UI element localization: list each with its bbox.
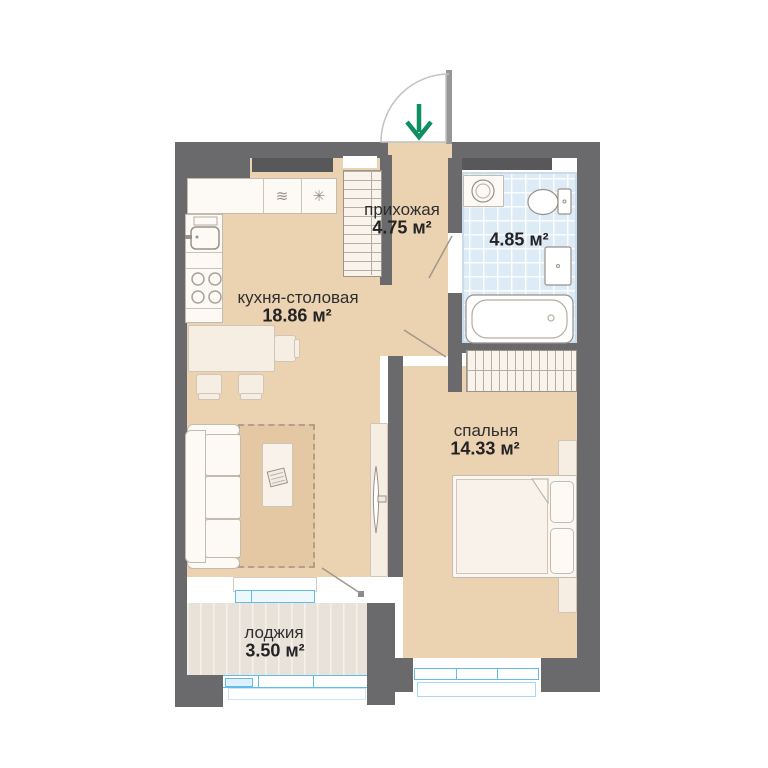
wall-loggia-left-corner	[175, 675, 223, 707]
wall-bedroom-door-stub	[448, 353, 462, 392]
loggia-outer-sill	[228, 688, 366, 700]
wall-bedroom-bottom-left	[395, 658, 413, 692]
coffee-table	[262, 443, 293, 507]
kitchen-hallway-passage-floor	[380, 285, 397, 356]
floor-plan: ≋ ✳	[0, 0, 768, 768]
entry-arrow-icon	[407, 104, 431, 137]
loggia-vent-window	[225, 678, 253, 687]
living-window	[235, 590, 315, 603]
loggia-area: 3.50 м²	[245, 641, 304, 662]
dining-chair-bottom-1-back	[198, 393, 220, 400]
dishwasher-icon: ≋	[276, 187, 289, 205]
bed-pillow	[550, 481, 574, 523]
sofa-backrest	[185, 430, 206, 563]
dining-chair-right-back	[294, 339, 300, 358]
sofa-cushion	[205, 519, 241, 558]
loggia-door-hinge	[358, 591, 364, 597]
bed-mattress	[456, 479, 548, 574]
dining-table	[188, 325, 275, 372]
entry-door-leaf	[446, 70, 452, 144]
living-window-divider	[251, 591, 252, 602]
wall-hallway-bathroom-upper	[448, 158, 462, 233]
kitchen-living-area: 18.86 м²	[262, 306, 331, 327]
bathroom-door-threshold	[448, 233, 462, 293]
bedroom-window-divider	[456, 669, 457, 679]
wall-bedroom-bottom-right	[541, 658, 600, 692]
bedroom-wardrobe	[466, 350, 577, 392]
counter-divider	[186, 252, 222, 253]
hallway-floor	[392, 155, 448, 356]
bedroom-outer-sill	[417, 682, 536, 697]
dining-chair-bottom-1	[196, 374, 222, 395]
counter-divider	[186, 308, 222, 309]
fridge-icon: ✳	[313, 187, 326, 205]
counter-divider	[186, 268, 222, 269]
wall-niche-above-closet	[343, 156, 377, 168]
dining-chair-bottom-2-back	[240, 393, 262, 400]
wall-right	[577, 142, 600, 692]
bedroom-window-divider	[497, 669, 498, 679]
bed-pillow	[550, 528, 574, 574]
bedroom-wardrobe-midline	[467, 370, 576, 371]
dining-chair-right	[274, 335, 296, 362]
tv-stand	[370, 423, 388, 577]
wall-shadow-kitchen	[252, 158, 333, 172]
dining-chair-bottom-2	[238, 374, 264, 395]
entry-door-swing-arc	[381, 74, 449, 142]
wall-loggia-right	[367, 603, 395, 705]
bedroom-area: 14.33 м²	[450, 439, 519, 460]
hallway-area: 4.75 м²	[372, 218, 431, 239]
cabinet-divider	[263, 179, 264, 213]
bedroom-window	[414, 668, 539, 680]
washing-machine	[463, 175, 504, 207]
entry-opening-floor	[388, 142, 452, 158]
sofa-cushion	[205, 476, 241, 519]
wall-living-bedroom	[388, 356, 403, 577]
wall-shadow-bathroom	[462, 158, 552, 170]
bedroom-door-threshold	[403, 356, 448, 366]
loggia-glazing-divider	[258, 676, 259, 687]
bathroom-area: 4.85 м²	[489, 230, 548, 251]
loggia-glazing-divider	[313, 676, 314, 687]
sofa-cushion	[205, 434, 241, 476]
cabinet-divider	[301, 179, 302, 213]
